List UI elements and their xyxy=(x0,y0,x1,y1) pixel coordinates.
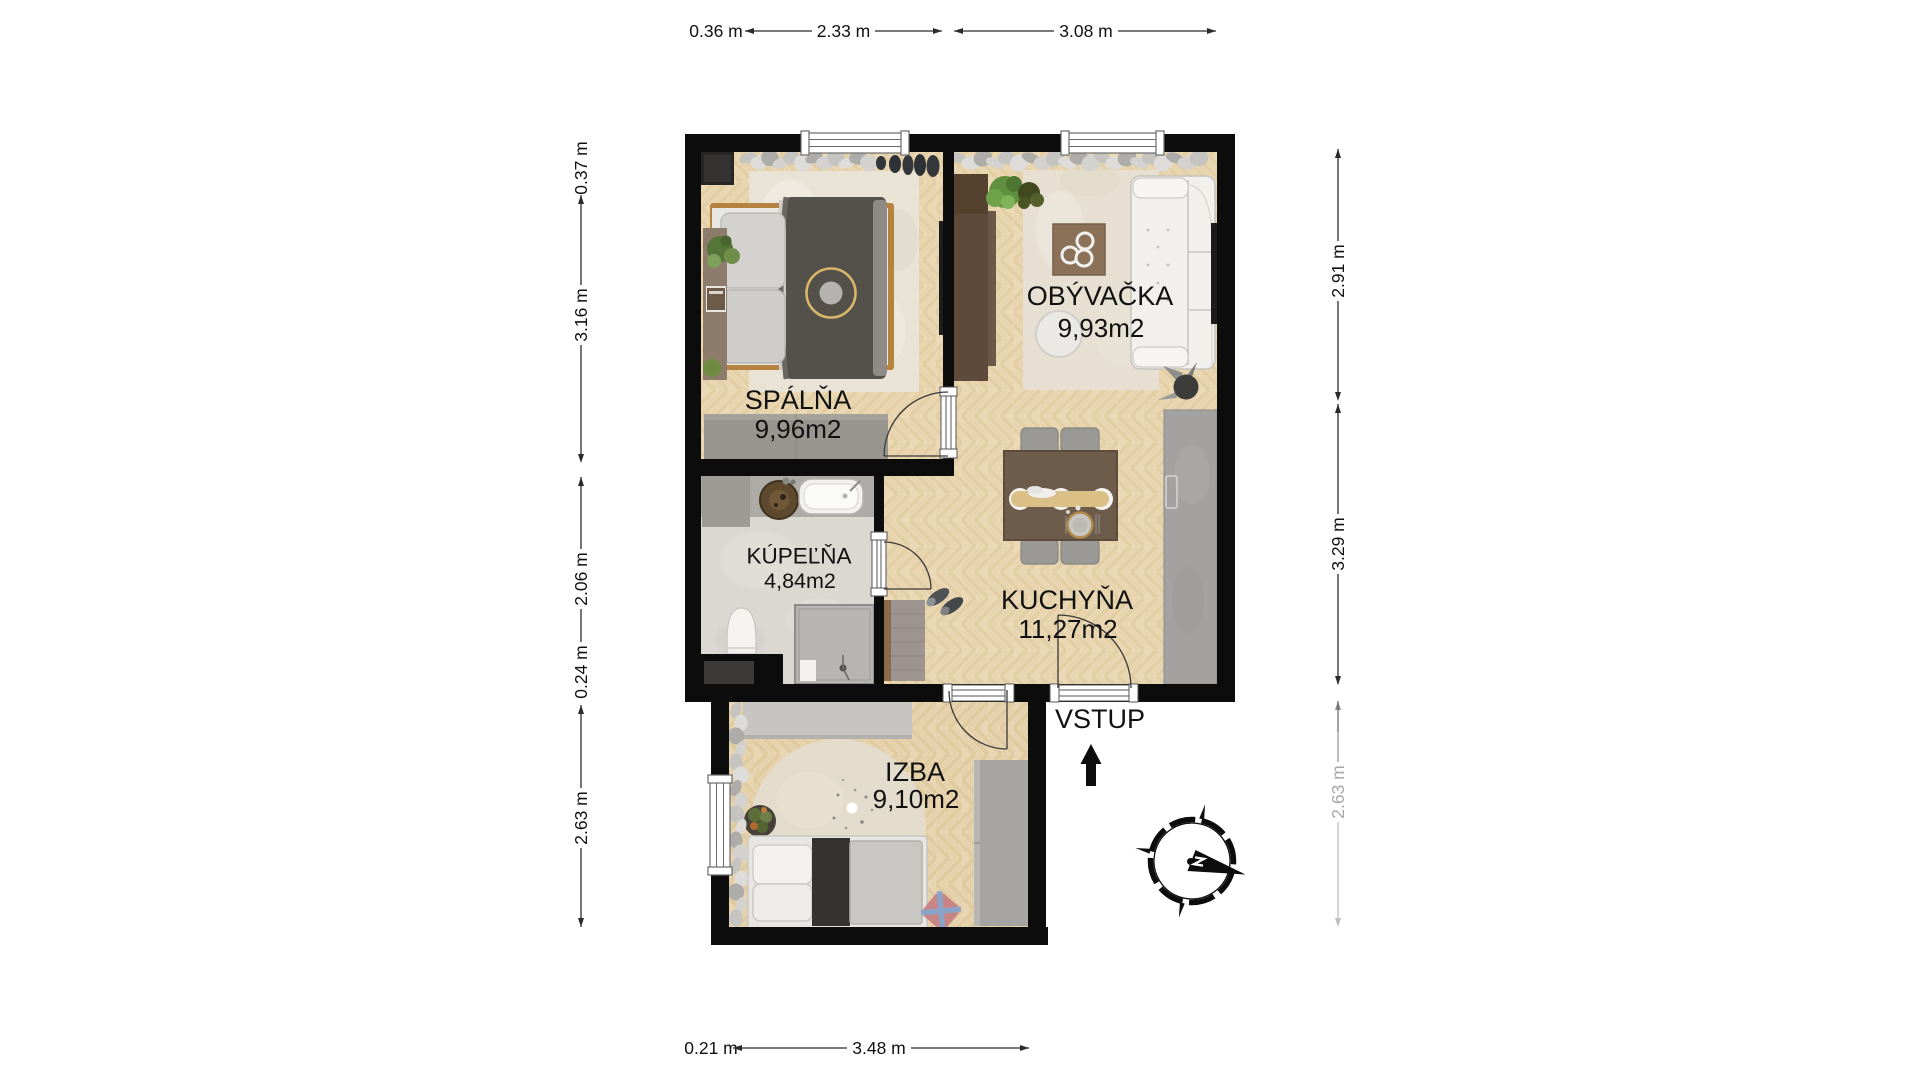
svg-text:2.91 m: 2.91 m xyxy=(1328,244,1348,298)
svg-text:0.37 m: 0.37 m xyxy=(571,141,591,195)
svg-text:0.24 m: 0.24 m xyxy=(571,645,591,699)
svg-text:0.36 m: 0.36 m xyxy=(689,21,743,41)
svg-text:VSTUP: VSTUP xyxy=(1055,704,1145,734)
svg-text:3.29 m: 3.29 m xyxy=(1328,517,1348,571)
svg-text:KUCHYŇA: KUCHYŇA xyxy=(1001,584,1133,615)
svg-text:0.21 m: 0.21 m xyxy=(684,1038,738,1058)
svg-text:9,93m2: 9,93m2 xyxy=(1058,313,1145,343)
svg-text:2.06 m: 2.06 m xyxy=(571,552,591,606)
svg-text:KÚPEĽŇA: KÚPEĽŇA xyxy=(746,544,851,569)
svg-text:3.16 m: 3.16 m xyxy=(571,288,591,342)
svg-text:9,10m2: 9,10m2 xyxy=(873,784,960,814)
svg-text:IZBA: IZBA xyxy=(885,757,945,787)
svg-text:11,27m2: 11,27m2 xyxy=(1018,614,1117,644)
svg-text:9,96m2: 9,96m2 xyxy=(755,414,842,444)
svg-text:2.63 m: 2.63 m xyxy=(1328,765,1348,819)
svg-text:3.08 m: 3.08 m xyxy=(1059,21,1113,41)
svg-text:4,84m2: 4,84m2 xyxy=(764,569,836,593)
svg-text:SPÁLŇA: SPÁLŇA xyxy=(745,384,852,415)
svg-text:OBÝVAČKA: OBÝVAČKA xyxy=(1027,280,1174,311)
svg-text:3.48 m: 3.48 m xyxy=(852,1038,906,1058)
svg-text:2.63 m: 2.63 m xyxy=(571,791,591,845)
svg-text:2.33 m: 2.33 m xyxy=(817,21,871,41)
